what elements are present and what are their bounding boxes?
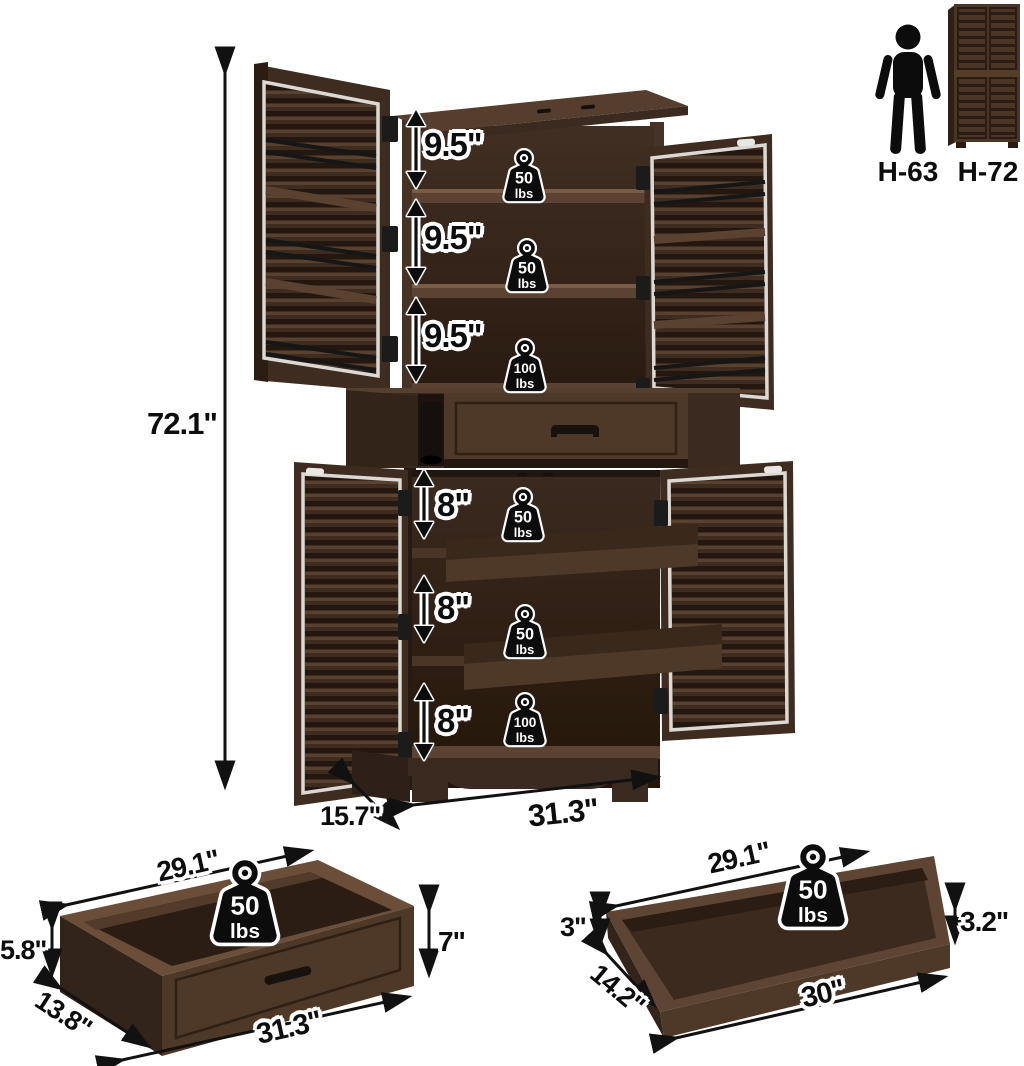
weight-badge-lower-1: 50lbs (497, 486, 549, 544)
dim-width: 31.3" (527, 793, 600, 831)
svg-text:lbs: lbs (516, 642, 534, 657)
upper-left-door (254, 62, 398, 392)
svg-text:50: 50 (514, 509, 532, 527)
dim-lower-gap-3: 8" (437, 704, 469, 737)
product-dimension-diagram: 72.1" 9.5" 9.5" 9.5" 8" 8" 8" 15.7" 31.3… (0, 0, 1024, 1066)
svg-text:lbs: lbs (516, 730, 534, 745)
svg-text:lbs: lbs (230, 920, 260, 943)
svg-text:100: 100 (514, 361, 537, 376)
dim-tray-right-height: 3.2" (960, 908, 1008, 936)
svg-text:lbs: lbs (515, 186, 533, 201)
weight-badge-tray: 50lbs (770, 839, 856, 933)
svg-text:50: 50 (516, 626, 534, 644)
dim-lower-gap-1: 8" (437, 488, 469, 521)
dim-drawer-inner-height: 5.8" (0, 937, 46, 964)
dim-upper-gap-3: 9.5" (424, 319, 482, 352)
dim-depth: 15.7" (320, 803, 380, 830)
svg-text:100: 100 (514, 715, 537, 730)
dim-upper-gap-2: 9.5" (424, 221, 482, 254)
person-icon (874, 25, 941, 155)
dim-tray-left-height: 3" (560, 914, 586, 941)
svg-text:lbs: lbs (514, 525, 532, 540)
svg-text:50: 50 (515, 170, 533, 188)
svg-text:lbs: lbs (516, 376, 534, 391)
weight-badge-lower-2: 50lbs (499, 603, 551, 661)
svg-text:50: 50 (798, 874, 827, 904)
middle-drawer (346, 388, 740, 470)
dim-lower-gap-2: 8" (437, 591, 469, 624)
svg-text:lbs: lbs (518, 276, 536, 291)
svg-text:lbs: lbs (798, 904, 828, 927)
ref-person-label: H-63 (872, 158, 944, 186)
svg-text:50: 50 (230, 890, 259, 920)
weight-badge-drawer: 50lbs (202, 855, 288, 949)
weight-badge-upper-2: 50lbs (501, 237, 553, 295)
svg-text:50: 50 (518, 260, 536, 278)
weight-badge-lower-3: 100lbs (499, 691, 551, 749)
dim-overall-height: 72.1" (144, 408, 220, 439)
weight-badge-upper-3: 100lbs (499, 337, 551, 395)
dim-drawer-front-height: 7" (438, 928, 465, 956)
mini-cabinet-icon (948, 4, 1020, 148)
upper-right-door (636, 134, 774, 410)
weight-badge-upper-1: 50lbs (498, 147, 550, 205)
dim-upper-gap-1: 9.5" (424, 128, 482, 161)
ref-cabinet-label: H-72 (952, 158, 1024, 186)
lower-right-door (654, 461, 795, 741)
